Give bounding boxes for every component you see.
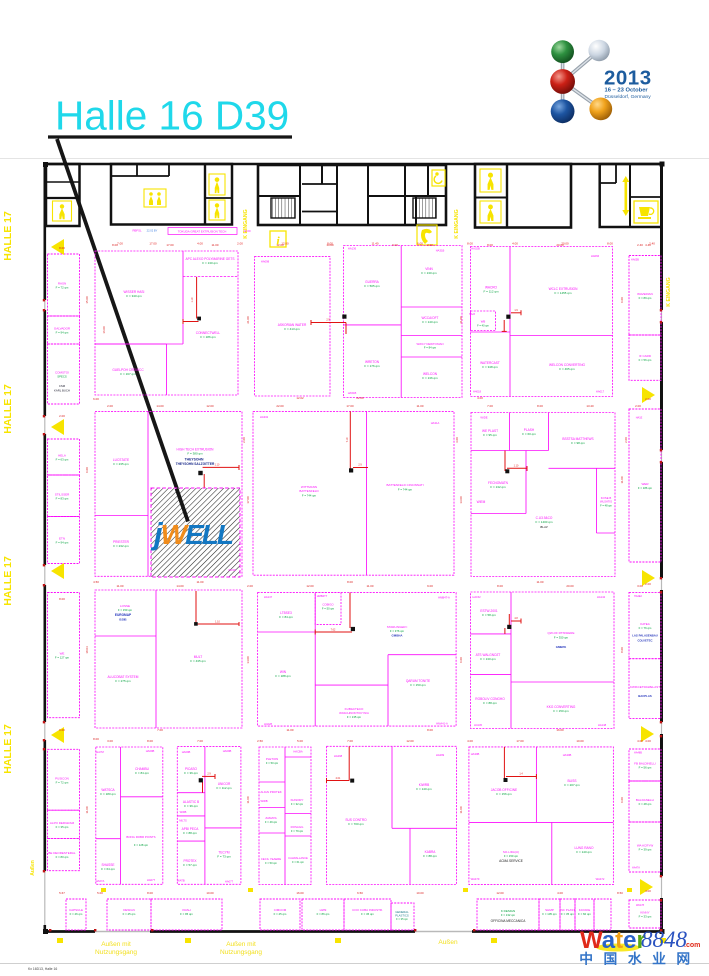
svg-text:QW-OF RTISSIERE: QW-OF RTISSIERE [548, 631, 575, 635]
svg-text:RBFSL: RBFSL [132, 229, 141, 233]
svg-text:17.00: 17.00 [346, 404, 354, 408]
svg-text:11.40: 11.40 [371, 242, 378, 246]
svg-text:WIDE: WIDE [480, 416, 487, 420]
svg-text:20.00: 20.00 [561, 242, 569, 246]
svg-text:F = 413 qm: F = 413 qm [284, 327, 300, 331]
svg-text:ACMA SERVICE: ACMA SERVICE [499, 859, 523, 863]
svg-text:2.00: 2.00 [247, 584, 253, 588]
svg-text:Water: Water [580, 927, 646, 954]
svg-text:6.00: 6.00 [93, 397, 99, 401]
svg-text:F = 505 qm: F = 505 qm [364, 284, 380, 288]
svg-text:K EINGANG: K EINGANG [454, 209, 460, 238]
svg-text:F = 112 qm: F = 112 qm [216, 786, 232, 790]
svg-text:12.02: 12.02 [296, 396, 304, 400]
svg-text:F = 207 qm: F = 207 qm [564, 783, 580, 787]
svg-text:F = 275 qm: F = 275 qm [115, 679, 131, 683]
svg-text:F = 94 qm: F = 94 qm [56, 331, 69, 335]
svg-text:F = 128 qm: F = 128 qm [134, 843, 149, 847]
svg-text:Nutzungsgang: Nutzungsgang [95, 949, 137, 956]
svg-text:F = 105 qm: F = 105 qm [542, 912, 557, 916]
svg-text:F = 176 qm: F = 176 qm [364, 364, 380, 368]
svg-text:17.00: 17.00 [149, 242, 157, 246]
svg-text:HA298: HA298 [334, 754, 343, 758]
svg-text:THEYSOHN: THEYSOHN [185, 458, 204, 462]
svg-text:F = 50 qm: F = 50 qm [266, 761, 279, 765]
svg-text:F = 45 qm: F = 45 qm [274, 912, 287, 916]
svg-text:15.00: 15.00 [85, 296, 89, 304]
svg-text:BATTENFELD CINCINNATI: BATTENFELD CINCINNATI [386, 483, 423, 487]
svg-text:F = 700 qm: F = 700 qm [348, 822, 364, 826]
svg-text:HA299: HA299 [436, 753, 445, 757]
svg-text:HA09B: HA09B [223, 749, 232, 753]
svg-text:13.40: 13.40 [586, 404, 594, 408]
svg-text:SPECS: SPECS [57, 375, 67, 379]
svg-text:12.00: 12.00 [306, 584, 314, 588]
svg-text:F = 88 qm: F = 88 qm [483, 701, 497, 705]
svg-text:H4228: H4228 [264, 722, 272, 726]
svg-text:2.00: 2.00 [242, 437, 246, 443]
svg-text:F = 188 qm: F = 188 qm [275, 674, 291, 678]
svg-text:HA066: HA066 [591, 254, 600, 258]
svg-text:11.00: 11.00 [459, 806, 463, 813]
svg-text:Außen mit: Außen mit [101, 941, 131, 948]
svg-text:3.00: 3.00 [637, 584, 643, 588]
svg-text:8.00: 8.00 [427, 728, 433, 732]
svg-text:8.00: 8.00 [59, 597, 65, 601]
svg-text:F = 35 qm: F = 35 qm [561, 912, 574, 916]
svg-text:中国水业网: 中国水业网 [579, 951, 700, 967]
svg-text:HA077: HA077 [147, 878, 156, 882]
svg-text:HA23: HA23 [469, 313, 476, 316]
svg-text:BLAV: BLAV [540, 525, 549, 529]
svg-text:WA472: WA472 [596, 877, 605, 881]
svg-text:8.50: 8.50 [617, 891, 623, 895]
svg-text:F = 150 qm: F = 150 qm [504, 854, 519, 858]
svg-text:jWELL: jWELL [150, 516, 233, 551]
svg-text:HA7M: HA7M [96, 750, 104, 754]
svg-text:1.10: 1.10 [191, 297, 194, 302]
svg-text:F = 140 qm: F = 140 qm [416, 787, 432, 791]
svg-text:4.40: 4.40 [645, 243, 651, 247]
svg-text:MILTS: MILTS [179, 819, 187, 823]
svg-text:2.00: 2.00 [624, 437, 628, 443]
svg-text:HALLE 17: HALLE 17 [2, 556, 14, 606]
svg-text:#D39: #D39 [228, 568, 236, 572]
svg-text:F = 744 qm: F = 744 qm [398, 488, 413, 492]
svg-text:F = 89 qm: F = 89 qm [639, 296, 652, 300]
svg-text:F = 350 qm: F = 350 qm [554, 636, 569, 640]
svg-text:WIEM: WIEM [477, 500, 486, 504]
svg-text:14.00: 14.00 [176, 584, 184, 588]
svg-text:20.00: 20.00 [566, 584, 574, 588]
svg-text:HA07A: HA07A [96, 879, 105, 883]
svg-text:COLVETEC: COLVETEC [637, 639, 652, 643]
svg-text:TOKUDA GREAT EXTRUSION TECH: TOKUDA GREAT EXTRUSION TECH [178, 230, 227, 234]
svg-text:LAS PALASENBAU: LAS PALASENBAU [632, 634, 658, 638]
svg-text:9.00: 9.00 [392, 243, 398, 247]
svg-text:1.10: 1.10 [514, 465, 519, 468]
svg-text:HA077: HA077 [225, 880, 234, 884]
svg-text:Halle 16 D39: Halle 16 D39 [55, 93, 289, 139]
svg-text:Außen mit: Außen mit [226, 941, 256, 948]
svg-text:17.00: 17.00 [166, 243, 174, 247]
svg-text:4.00: 4.00 [197, 242, 203, 246]
svg-text:17.00: 17.00 [246, 496, 250, 504]
svg-text:Außen: Außen [438, 939, 458, 946]
svg-text:HA017: HA017 [596, 390, 605, 394]
svg-text:HMA41-A: HMA41-A [436, 722, 448, 726]
svg-text:F = 135 qm: F = 135 qm [347, 715, 362, 719]
svg-text:F = 84 qm: F = 84 qm [424, 346, 437, 350]
svg-text:F = 98 qm: F = 98 qm [571, 441, 585, 445]
svg-text:F = 150 qm: F = 150 qm [553, 709, 569, 713]
svg-text:12.00: 12.00 [406, 739, 414, 743]
svg-text:KWIKCETRAWELAST: KWIKCETRAWELAST [630, 685, 660, 689]
svg-text:.com: .com [684, 942, 700, 949]
svg-text:F = 235 qm: F = 235 qm [113, 462, 129, 466]
svg-text:10.00: 10.00 [416, 891, 424, 895]
svg-text:HA332: HA332 [260, 415, 269, 419]
svg-text:HA48B: HA48B [634, 752, 642, 755]
svg-text:4.50: 4.50 [93, 580, 99, 584]
svg-text:14.00: 14.00 [246, 656, 250, 664]
svg-text:8.00: 8.00 [497, 584, 503, 588]
svg-text:HA098: HA098 [261, 260, 270, 264]
svg-text:K EINGANG: K EINGANG [243, 209, 249, 238]
svg-text:F = 50 qm: F = 50 qm [322, 607, 335, 611]
svg-text:2.00: 2.00 [645, 397, 651, 401]
svg-text:HALLE 17: HALLE 17 [2, 211, 14, 261]
svg-text:F = 50 qm: F = 50 qm [265, 861, 277, 865]
svg-text:2.50: 2.50 [257, 739, 263, 743]
svg-text:Außen: Außen [30, 860, 36, 876]
svg-text:22.00: 22.00 [276, 404, 284, 408]
svg-text:HA136: HA136 [348, 247, 357, 251]
svg-text:ZAMATA: ZAMATA [265, 816, 276, 820]
svg-text:F = 94 qm: F = 94 qm [56, 541, 69, 545]
svg-text:WLSATIS: WLSATIS [600, 500, 612, 504]
svg-text:11.00: 11.00 [366, 584, 373, 588]
svg-text:HA152: HA152 [472, 595, 481, 599]
svg-text:F = 132 qm: F = 132 qm [501, 913, 516, 917]
svg-text:8.00: 8.00 [620, 647, 624, 653]
svg-text:F = 48 qm: F = 48 qm [600, 504, 612, 508]
svg-text:12.00: 12.00 [244, 229, 251, 233]
svg-text:KIASORY: KIASORY [291, 798, 304, 802]
svg-text:18.04: 18.04 [85, 646, 89, 654]
svg-text:F = 84 qm: F = 84 qm [135, 771, 149, 775]
svg-text:9.00: 9.00 [620, 797, 624, 803]
svg-text:F = 95 qm: F = 95 qm [483, 433, 497, 437]
svg-text:F = 1455 qm: F = 1455 qm [555, 291, 572, 295]
svg-text:F = 40 qm: F = 40 qm [477, 324, 489, 328]
svg-text:HA02B: HA02B [471, 247, 480, 251]
svg-text:8848: 8848 [641, 927, 688, 952]
svg-text:F = 132 qm: F = 132 qm [490, 485, 506, 489]
svg-text:F = 56 qm: F = 56 qm [639, 358, 652, 362]
svg-text:F = 35 qm: F = 35 qm [56, 825, 69, 829]
svg-text:F = 380 qm: F = 380 qm [187, 452, 203, 456]
svg-text:8.00: 8.00 [487, 243, 493, 247]
svg-text:4.00: 4.00 [645, 739, 651, 743]
svg-text:6.00: 6.00 [59, 728, 65, 732]
svg-text:22.00: 22.00 [356, 396, 364, 400]
svg-text:EUROMAP: EUROMAP [115, 613, 132, 617]
svg-text:F = 46 qm: F = 46 qm [70, 912, 83, 916]
svg-text:BACPLAS: BACPLAS [638, 694, 652, 698]
svg-text:8.00: 8.00 [59, 246, 65, 250]
svg-text:16.00: 16.00 [296, 891, 304, 895]
svg-text:2013: 2013 [604, 67, 652, 90]
svg-text:7.00: 7.00 [117, 242, 123, 246]
svg-text:13.00: 13.00 [459, 496, 463, 504]
svg-text:21.00: 21.00 [246, 316, 250, 324]
svg-text:F = 72 qm: F = 72 qm [56, 286, 69, 290]
svg-text:CALWALLANCE: CALWALLANCE [288, 856, 308, 860]
svg-text:2.00: 2.00 [635, 404, 641, 408]
svg-text:F = 167 qm: F = 167 qm [120, 372, 136, 376]
svg-text:ALIGN PROTEK: ALIGN PROTEK [260, 790, 281, 794]
svg-text:21.00: 21.00 [459, 316, 463, 324]
svg-text:F = 36 qm: F = 36 qm [184, 771, 198, 775]
svg-text:7.00: 7.00 [347, 739, 353, 743]
svg-text:F = 130 qm: F = 130 qm [421, 271, 437, 275]
svg-text:F = 86 qm: F = 86 qm [317, 912, 330, 916]
svg-text:F = 435 qm: F = 435 qm [190, 659, 206, 663]
svg-text:HA09B: HA09B [146, 749, 155, 753]
svg-text:4.00: 4.00 [645, 889, 651, 893]
svg-text:F = 180 qm: F = 180 qm [100, 792, 116, 796]
svg-text:9.00: 9.00 [427, 584, 433, 588]
svg-text:10.00: 10.00 [206, 891, 214, 895]
svg-text:12.00: 12.00 [281, 242, 289, 246]
svg-text:HA30B: HA30B [563, 753, 572, 757]
svg-text:HA05B: HA05B [631, 259, 639, 262]
svg-text:F = 232 qm: F = 232 qm [113, 544, 129, 548]
svg-text:16 – 23 October: 16 – 23 October [605, 88, 649, 94]
svg-text:2.00: 2.00 [59, 414, 65, 418]
svg-text:4.00: 4.00 [512, 242, 518, 246]
svg-text:F = 32 qm: F = 32 qm [291, 802, 304, 806]
svg-text:BONG ROBR POINTS: BONG ROBR POINTS [126, 835, 155, 839]
svg-text:F = 136 qm: F = 136 qm [422, 376, 438, 380]
svg-text:14.00: 14.00 [156, 404, 164, 408]
svg-text:9.00: 9.00 [85, 467, 89, 473]
svg-text:HA30B: HA30B [471, 752, 480, 756]
svg-text:22.02 BY: 22.02 BY [147, 229, 158, 233]
svg-text:Kx 16D13, Halle 16: Kx 16D13, Halle 16 [28, 967, 57, 971]
svg-text:F = 60 qm: F = 60 qm [522, 432, 536, 436]
svg-text:F = 60 qm: F = 60 qm [578, 912, 591, 916]
svg-text:THEYSOHN SALZGITTER: THEYSOHN SALZGITTER [176, 462, 215, 466]
svg-text:11.00: 11.00 [416, 404, 423, 408]
svg-text:4.00: 4.00 [477, 396, 483, 400]
svg-text:11.00: 11.00 [211, 243, 218, 247]
svg-text:7.10: 7.10 [346, 437, 349, 442]
svg-text:2.00: 2.00 [645, 582, 651, 586]
svg-text:8.00: 8.00 [607, 242, 613, 246]
svg-text:WWCY NEWTONIAN: WWCY NEWTONIAN [417, 342, 444, 346]
svg-text:F = 140 qm: F = 140 qm [576, 850, 592, 854]
svg-text:H4018: H4018 [473, 390, 481, 394]
svg-text:F = 72 qm: F = 72 qm [56, 780, 69, 784]
svg-text:PLETION: PLETION [266, 757, 278, 761]
svg-text:F = 376 qm: F = 376 qm [390, 629, 405, 633]
svg-text:1.10: 1.10 [215, 464, 220, 467]
svg-text:WATB: WATB [177, 879, 185, 883]
svg-text:F = 130 qm: F = 130 qm [202, 261, 218, 265]
svg-text:7.00: 7.00 [157, 728, 163, 732]
svg-text:PLASTICS: PLASTICS [395, 914, 409, 918]
svg-text:11.00: 11.00 [196, 580, 203, 584]
svg-text:F = 83 qm: F = 83 qm [56, 496, 69, 500]
svg-text:2.40: 2.40 [637, 243, 643, 247]
svg-text:F = 58 qm: F = 58 qm [482, 613, 496, 617]
svg-text:HA142: HA142 [597, 595, 606, 599]
svg-text:8.00: 8.00 [537, 404, 543, 408]
svg-text:11.00: 11.00 [620, 476, 624, 483]
svg-text:F = 80 qm: F = 80 qm [56, 855, 69, 859]
svg-text:Düsseldorf, Germany: Düsseldorf, Germany [605, 94, 652, 100]
svg-text:12.00: 12.00 [206, 404, 214, 408]
svg-text:7.00: 7.00 [487, 404, 493, 408]
svg-text:1.10: 1.10 [215, 621, 220, 624]
svg-text:HA31A: HA31A [431, 421, 440, 425]
svg-text:HACBA: HACBA [293, 750, 302, 754]
svg-text:HALLE 17: HALLE 17 [2, 724, 14, 774]
svg-text:F = 156 qm: F = 156 qm [496, 792, 512, 796]
svg-text:F = 45 qm: F = 45 qm [361, 912, 374, 916]
svg-text:F = 56 qm: F = 56 qm [639, 766, 652, 770]
svg-text:WA178: WA178 [636, 904, 645, 907]
svg-text:CECIL YEAERE: CECIL YEAERE [261, 857, 281, 861]
svg-text:F = 1400 qm: F = 1400 qm [536, 520, 553, 524]
svg-text:GMBPA: GMBPA [556, 645, 567, 649]
svg-text:8.00: 8.00 [347, 580, 353, 584]
svg-text:F = 57 qm: F = 57 qm [183, 863, 197, 867]
svg-text:Nutzungsgang: Nutzungsgang [220, 949, 262, 956]
svg-text:HMB4T-A: HMB4T-A [438, 596, 450, 600]
svg-text:F = 130 qm: F = 130 qm [480, 657, 496, 661]
svg-text:11.00: 11.00 [536, 580, 543, 584]
svg-text:8.00: 8.00 [93, 737, 99, 741]
svg-text:HA148: HA148 [598, 723, 607, 727]
svg-text:4.00: 4.00 [557, 891, 563, 895]
svg-text:HA31B: HA31B [436, 249, 445, 253]
svg-text:F = 73 qm: F = 73 qm [217, 855, 231, 859]
svg-text:F = 63 qm: F = 63 qm [56, 458, 69, 462]
svg-text:F = 127 qm: F = 127 qm [55, 656, 70, 660]
svg-text:F = 744 qm: F = 744 qm [302, 494, 317, 498]
svg-text:F = 340 qm: F = 340 qm [126, 294, 142, 298]
svg-text:HA147: HA147 [264, 595, 273, 599]
svg-text:WIDB: WIDB [260, 799, 267, 803]
svg-text:9.00: 9.00 [620, 297, 624, 303]
svg-text:F = 88 qm: F = 88 qm [423, 854, 437, 858]
svg-text:HA51B: HA51B [348, 391, 357, 395]
svg-text:F = 186 qm: F = 186 qm [638, 486, 653, 490]
svg-text:2.01: 2.01 [336, 777, 341, 780]
svg-text:8.00: 8.00 [147, 891, 153, 895]
svg-text:F = 36 qm: F = 36 qm [184, 804, 198, 808]
svg-text:ROSAGG: ROSAGG [291, 825, 304, 829]
svg-text:F = 186 qm: F = 186 qm [200, 335, 216, 339]
svg-text:F = 465 qm: F = 465 qm [559, 367, 575, 371]
svg-text:F = 95 qm: F = 95 qm [180, 912, 193, 916]
svg-text:6.50: 6.50 [357, 891, 363, 895]
svg-text:F = 150 qm: F = 150 qm [118, 608, 133, 612]
svg-text:WA479: WA479 [471, 877, 480, 881]
svg-text:2.00: 2.00 [427, 243, 433, 247]
svg-text:8.00: 8.00 [467, 242, 473, 246]
svg-text:3.00: 3.00 [107, 739, 113, 743]
svg-text:F = 348 qm: F = 348 qm [482, 365, 498, 369]
svg-text:WB: WB [481, 320, 486, 324]
svg-text:4.00: 4.00 [467, 739, 473, 743]
svg-text:11.00: 11.00 [116, 584, 123, 588]
svg-text:11.00: 11.00 [246, 796, 250, 803]
svg-text:5.67: 5.67 [59, 891, 65, 895]
svg-text:16.00: 16.00 [102, 326, 106, 334]
svg-text:F = 33 qm: F = 33 qm [639, 915, 652, 919]
svg-text:BSIB: BSIB [119, 618, 127, 622]
svg-text:8.00: 8.00 [327, 242, 333, 246]
svg-text:F = 112 qm: F = 112 qm [483, 290, 499, 294]
svg-text:2.00: 2.00 [107, 404, 113, 408]
svg-text:F = 88 qm: F = 88 qm [183, 831, 197, 835]
svg-text:F = 140 qm: F = 140 qm [422, 320, 438, 324]
svg-text:GMBHA: GMBHA [392, 634, 404, 638]
svg-text:3.00: 3.00 [455, 437, 459, 443]
svg-text:12.00: 12.00 [496, 891, 504, 895]
svg-text:F = 76 qm: F = 76 qm [639, 626, 652, 630]
svg-text:HA4E2: HA4E2 [634, 595, 643, 598]
svg-text:KARL BUCH: KARL BUCH [54, 389, 70, 393]
svg-text:11.00: 11.00 [85, 806, 89, 813]
svg-text:F = 35 qm: F = 35 qm [396, 917, 408, 921]
svg-text:8.00: 8.00 [147, 739, 153, 743]
svg-text:K EINGANG: K EINGANG [666, 277, 672, 306]
svg-text:F = 49 qm: F = 49 qm [265, 820, 278, 824]
svg-text:4.00: 4.00 [637, 739, 643, 743]
svg-text:9.00: 9.00 [459, 657, 463, 663]
svg-text:F = 84 qm: F = 84 qm [279, 615, 293, 619]
svg-text:HMB4T7: HMB4T7 [317, 594, 328, 598]
svg-text:F = 48 qm: F = 48 qm [639, 802, 652, 806]
svg-text:2.00: 2.00 [237, 242, 243, 246]
svg-text:F = 39 qm: F = 39 qm [639, 848, 652, 852]
svg-text:7.62: 7.62 [331, 629, 336, 632]
svg-text:16.00: 16.00 [556, 728, 564, 732]
svg-text:5.00: 5.00 [297, 739, 303, 743]
svg-text:BATTENFELD: BATTENFELD [299, 489, 319, 493]
svg-text:HA1E: HA1E [636, 417, 643, 420]
svg-text:6.00: 6.00 [417, 242, 423, 246]
svg-text:F = 45 qm: F = 45 qm [123, 912, 136, 916]
svg-text:F = 64 qm: F = 64 qm [101, 867, 115, 871]
svg-text:10.00: 10.00 [576, 739, 584, 743]
svg-text:H4145: H4145 [474, 723, 482, 727]
svg-text:HA09B: HA09B [182, 750, 191, 754]
svg-text:7.00: 7.00 [197, 739, 203, 743]
svg-text:11.00: 11.00 [286, 728, 293, 732]
svg-text:WIDB: WIDB [180, 810, 187, 814]
svg-text:HALLE 17: HALLE 17 [2, 384, 14, 434]
svg-text:COBIGO: COBIGO [322, 603, 334, 607]
svg-text:CSM: CSM [59, 384, 66, 388]
svg-text:F = 61 qm: F = 61 qm [292, 860, 304, 864]
svg-text:HA47A: HA47A [632, 867, 640, 870]
